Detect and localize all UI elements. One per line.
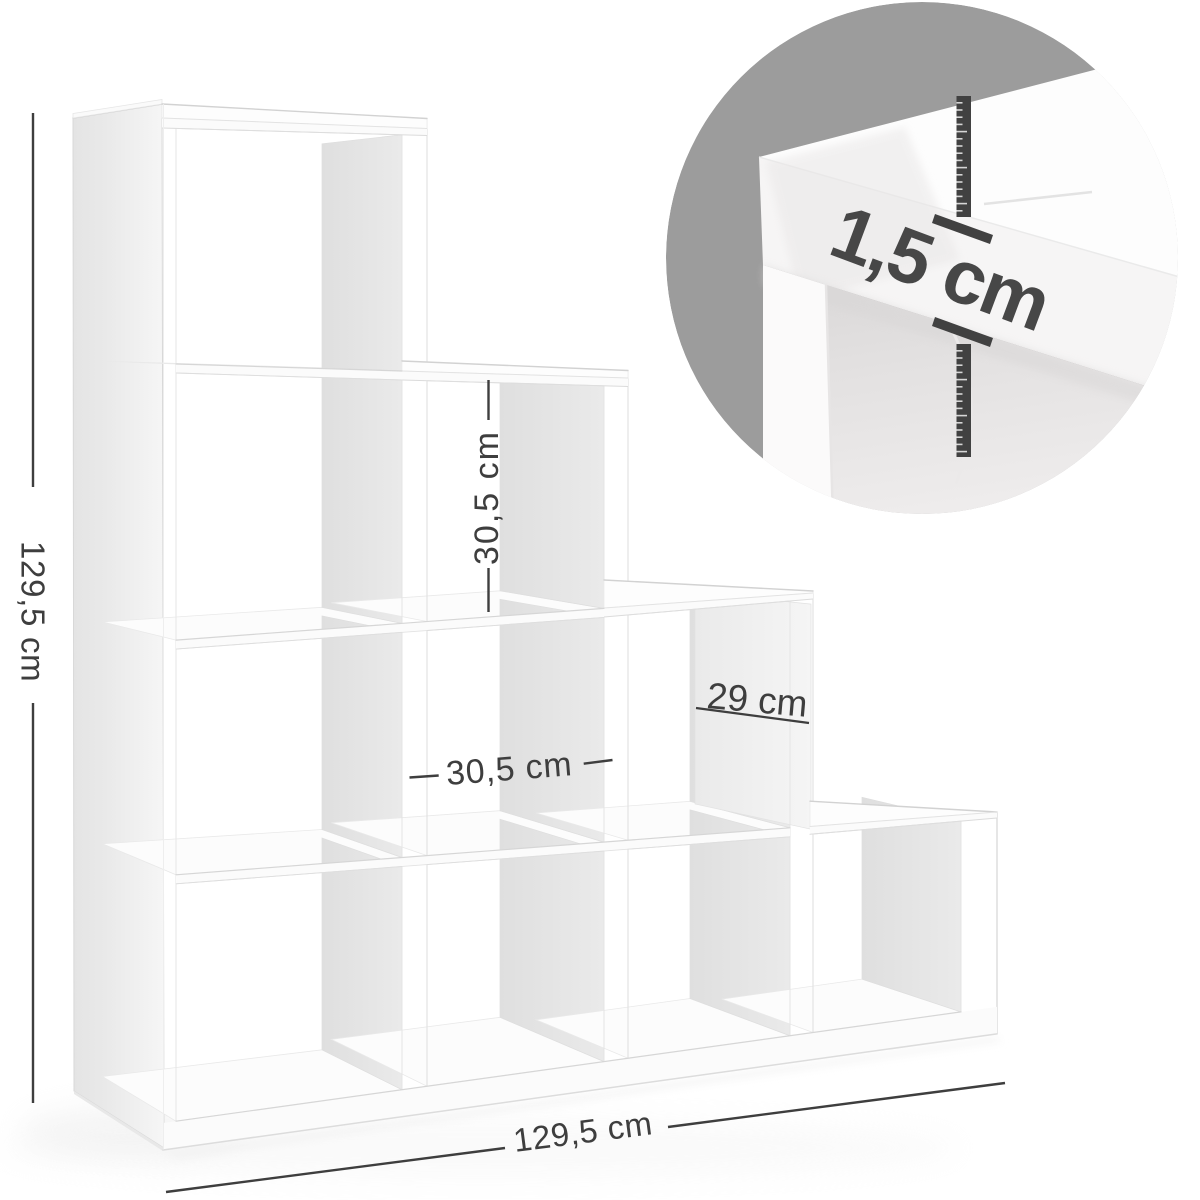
svg-text:30,5 cm: 30,5 cm [468,430,506,565]
svg-text:129,5 cm: 129,5 cm [15,541,52,682]
svg-text:29 cm: 29 cm [705,675,809,725]
